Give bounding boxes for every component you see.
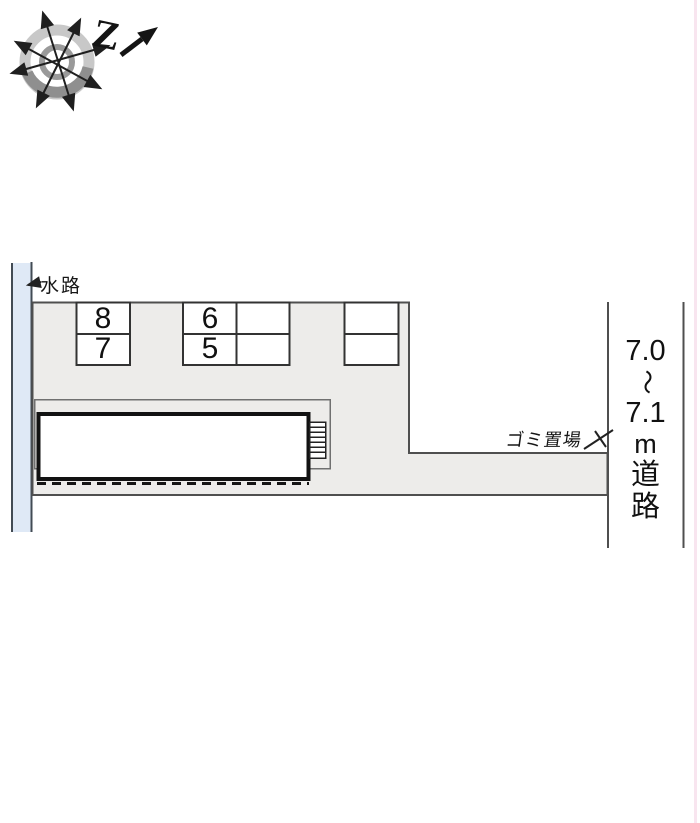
road-kanji-1: 道 [631,460,660,490]
road-width-unit: m [634,430,657,458]
stall-number-8: 8 [76,303,130,334]
road-width-value-high: 7.1 [625,398,665,428]
road-width-label: 7.0 ～ 7.1 m 道 路 [607,336,684,522]
waterway-label: 水路 [40,271,82,298]
site-plan-drawing [0,0,700,823]
right-edge-artifact [694,0,697,823]
compass-rose-icon [12,13,158,109]
water-channel-fill [12,263,31,532]
stall-number-7: 7 [76,334,130,364]
road-width-value-low: 7.0 [625,336,665,366]
road-width-tilde: ～ [631,369,659,394]
stall-number-6: 6 [183,303,237,334]
compass-inner-ring [42,47,72,77]
stairs-icon [310,422,326,458]
water-channel [12,262,32,532]
north-arrow-icon [121,27,158,55]
building-footprint [35,400,331,484]
garbage-area-label: ゴミ置場 [504,426,584,452]
building-wall-outline [39,414,309,479]
stall-number-5: 5 [183,334,237,364]
site-plan: Z 水路 ゴミ置場 8 7 6 5 7.0 ～ 7.1 m 道 路 [0,0,700,823]
road-kanji-2: 路 [631,492,660,522]
